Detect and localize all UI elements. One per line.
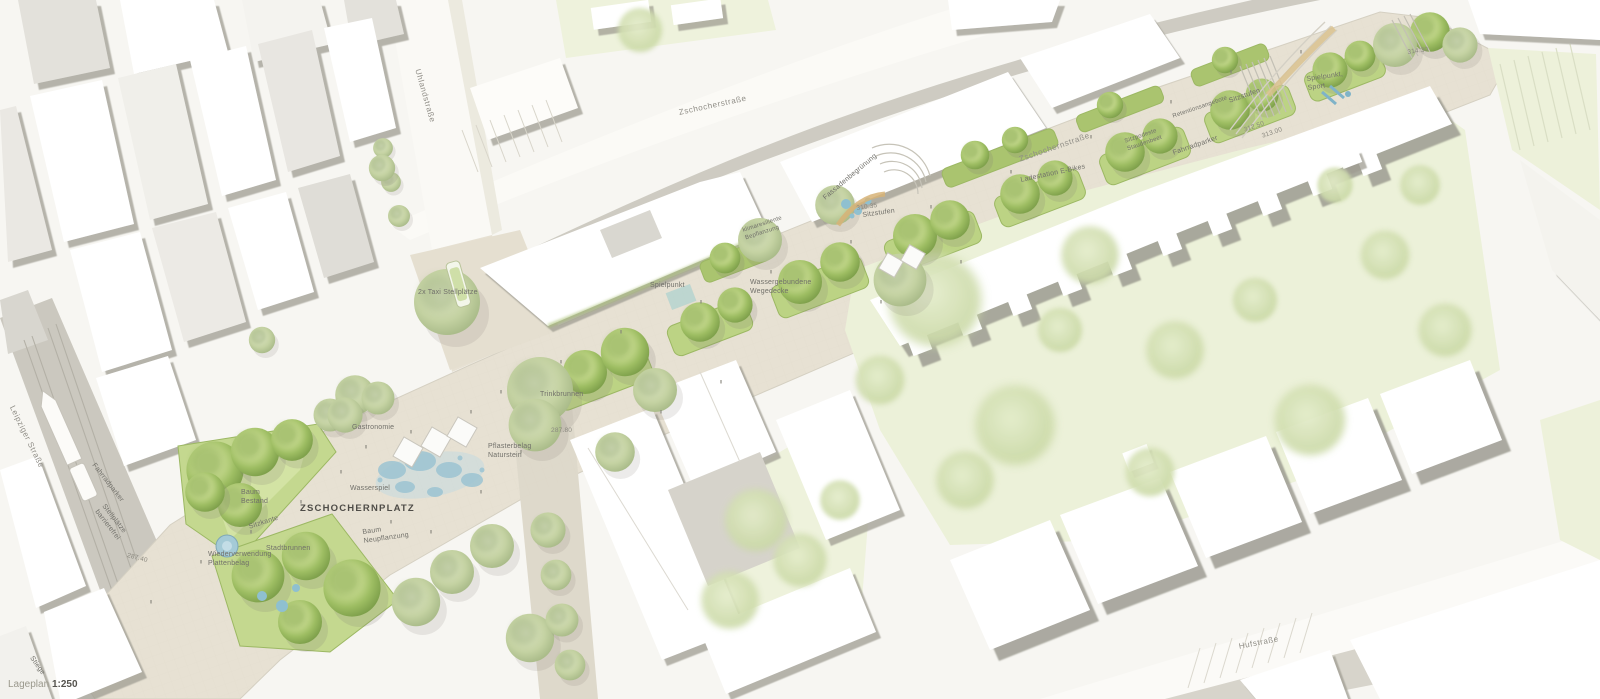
plan-caption-scale: 1:250 [52, 679, 78, 690]
label-wiederverwendung: Wiederverwendung Plattenbelag [208, 551, 272, 569]
label-taxi-stellplaetze: 2x Taxi Stellplätze [418, 289, 478, 298]
label-pflasterbelag: Pflasterbelag Naturstein [488, 443, 531, 461]
site-plan-drawing [0, 0, 1600, 699]
plan-caption-label: Lageplan [8, 679, 49, 690]
label-wassergebundene-wegedecke: Wassergebundene Wegedecke [750, 279, 812, 297]
label-stadtbrunnen: Stadtbrunnen [266, 545, 310, 554]
label-wasserspiel: Wasserspiel [350, 485, 390, 494]
site-plan: Leipziger Straße Uhlandstraße Zschochers… [0, 0, 1600, 699]
label-gastronomie: Gastronomie [352, 424, 394, 433]
label-spielpunkt: Spielpunkt [650, 282, 685, 291]
label-baum-bestand: Baum Bestand [241, 489, 268, 507]
elevation-marker: 287.80 [551, 427, 572, 435]
plan-caption: Lageplan 1:250 [8, 679, 78, 690]
label-trinkbrunnen: Trinkbrunnen [540, 391, 583, 400]
plaza-title: ZSCHOCHERNPLATZ [300, 503, 415, 515]
